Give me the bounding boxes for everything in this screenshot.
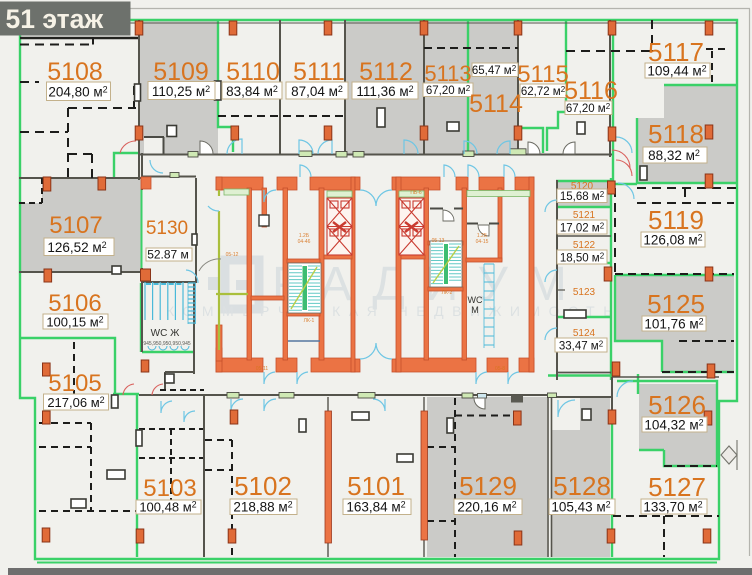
svg-text:133,70 м2: 133,70 м2 — [643, 500, 702, 515]
svg-text:5113: 5113 — [424, 61, 471, 86]
svg-text:5128: 5128 — [553, 471, 611, 501]
svg-text:88,32 м2: 88,32 м2 — [648, 148, 700, 163]
svg-text:5101: 5101 — [347, 471, 405, 501]
svg-text:M: M — [471, 305, 479, 315]
svg-text:17,02 м2: 17,02 м2 — [560, 222, 605, 235]
svg-text:5106: 5106 — [48, 290, 101, 317]
svg-text:05-12: 05-12 — [226, 252, 239, 258]
svg-text:5105: 5105 — [48, 370, 101, 397]
svg-text:104,32 м2: 104,32 м2 — [644, 418, 703, 433]
svg-text:101,76 м2: 101,76 м2 — [644, 317, 703, 332]
svg-text:5123: 5123 — [573, 287, 596, 298]
svg-text:05-13: 05-13 — [432, 238, 445, 244]
svg-text:5129: 5129 — [459, 471, 517, 501]
svg-text:51 этаж: 51 этаж — [6, 4, 105, 34]
svg-text:5118: 5118 — [648, 119, 704, 149]
svg-text:5122: 5122 — [573, 240, 596, 251]
svg-text:67,20 м2: 67,20 м2 — [566, 102, 611, 115]
svg-text:109,44 м2: 109,44 м2 — [647, 64, 706, 79]
svg-text:04-46: 04-46 — [298, 239, 311, 245]
svg-text:110,25 м2: 110,25 м2 — [152, 84, 210, 99]
svg-text:126,08 м2: 126,08 м2 — [643, 233, 702, 248]
svg-text:5103: 5103 — [143, 475, 196, 502]
svg-text:65,47 м2: 65,47 м2 — [472, 64, 517, 77]
svg-text:ПБ-6: ПБ-6 — [410, 190, 422, 196]
svg-text:126,52 м2: 126,52 м2 — [47, 240, 106, 255]
svg-text:5124: 5124 — [573, 328, 596, 339]
svg-text:5127: 5127 — [648, 472, 706, 502]
svg-text:220,16 м2: 220,16 м2 — [457, 500, 516, 515]
svg-text:83,84 м2: 83,84 м2 — [226, 84, 278, 99]
svg-text:5125: 5125 — [647, 289, 705, 319]
svg-text:62,72 м2: 62,72 м2 — [521, 85, 566, 98]
svg-text:204,80 м2: 204,80 м2 — [48, 85, 107, 100]
svg-text:15,68 м2: 15,68 м2 — [560, 190, 605, 203]
svg-text:100,48 м2: 100,48 м2 — [139, 500, 196, 515]
svg-text:5121: 5121 — [573, 210, 596, 221]
svg-text:163,84 м2: 163,84 м2 — [346, 500, 405, 515]
svg-text:05-8: 05-8 — [495, 366, 505, 372]
svg-text:05-11: 05-11 — [256, 366, 269, 372]
svg-text:WC: WC — [468, 295, 483, 305]
svg-text:ЛК-2: ЛК-2 — [442, 290, 453, 296]
svg-text:5119: 5119 — [648, 205, 704, 235]
svg-text:100,15 м2: 100,15 м2 — [46, 315, 103, 330]
svg-text:5126: 5126 — [648, 390, 706, 420]
svg-text:5114: 5114 — [469, 90, 523, 118]
svg-text:217,06 м2: 217,06 м2 — [47, 395, 104, 410]
svg-text:5107: 5107 — [49, 212, 102, 239]
svg-text:04-15: 04-15 — [476, 239, 489, 245]
svg-text:5102: 5102 — [234, 471, 292, 501]
svg-text:5130: 5130 — [146, 218, 188, 239]
svg-text:52.87 м: 52.87 м — [147, 248, 189, 262]
svg-text:18,50 м2: 18,50 м2 — [560, 252, 605, 265]
svg-text:111,36 м2: 111,36 м2 — [356, 84, 413, 99]
svg-text:218,88 м2: 218,88 м2 — [233, 500, 292, 515]
svg-text:33,47 м2: 33,47 м2 — [559, 340, 604, 353]
svg-text:КОММЕРЧЕСКАЯ НЕДВИЖИМОСТЬ: КОММЕРЧЕСКАЯ НЕДВИЖИМОСТЬ — [166, 303, 621, 319]
svg-text:WC Ж: WC Ж — [151, 328, 180, 339]
svg-text:87,04 м2: 87,04 м2 — [291, 84, 343, 99]
svg-text:ЛК-1: ЛК-1 — [304, 318, 315, 324]
svg-text:67,20 м2: 67,20 м2 — [426, 84, 471, 97]
svg-text:105,43 м2: 105,43 м2 — [551, 500, 610, 515]
